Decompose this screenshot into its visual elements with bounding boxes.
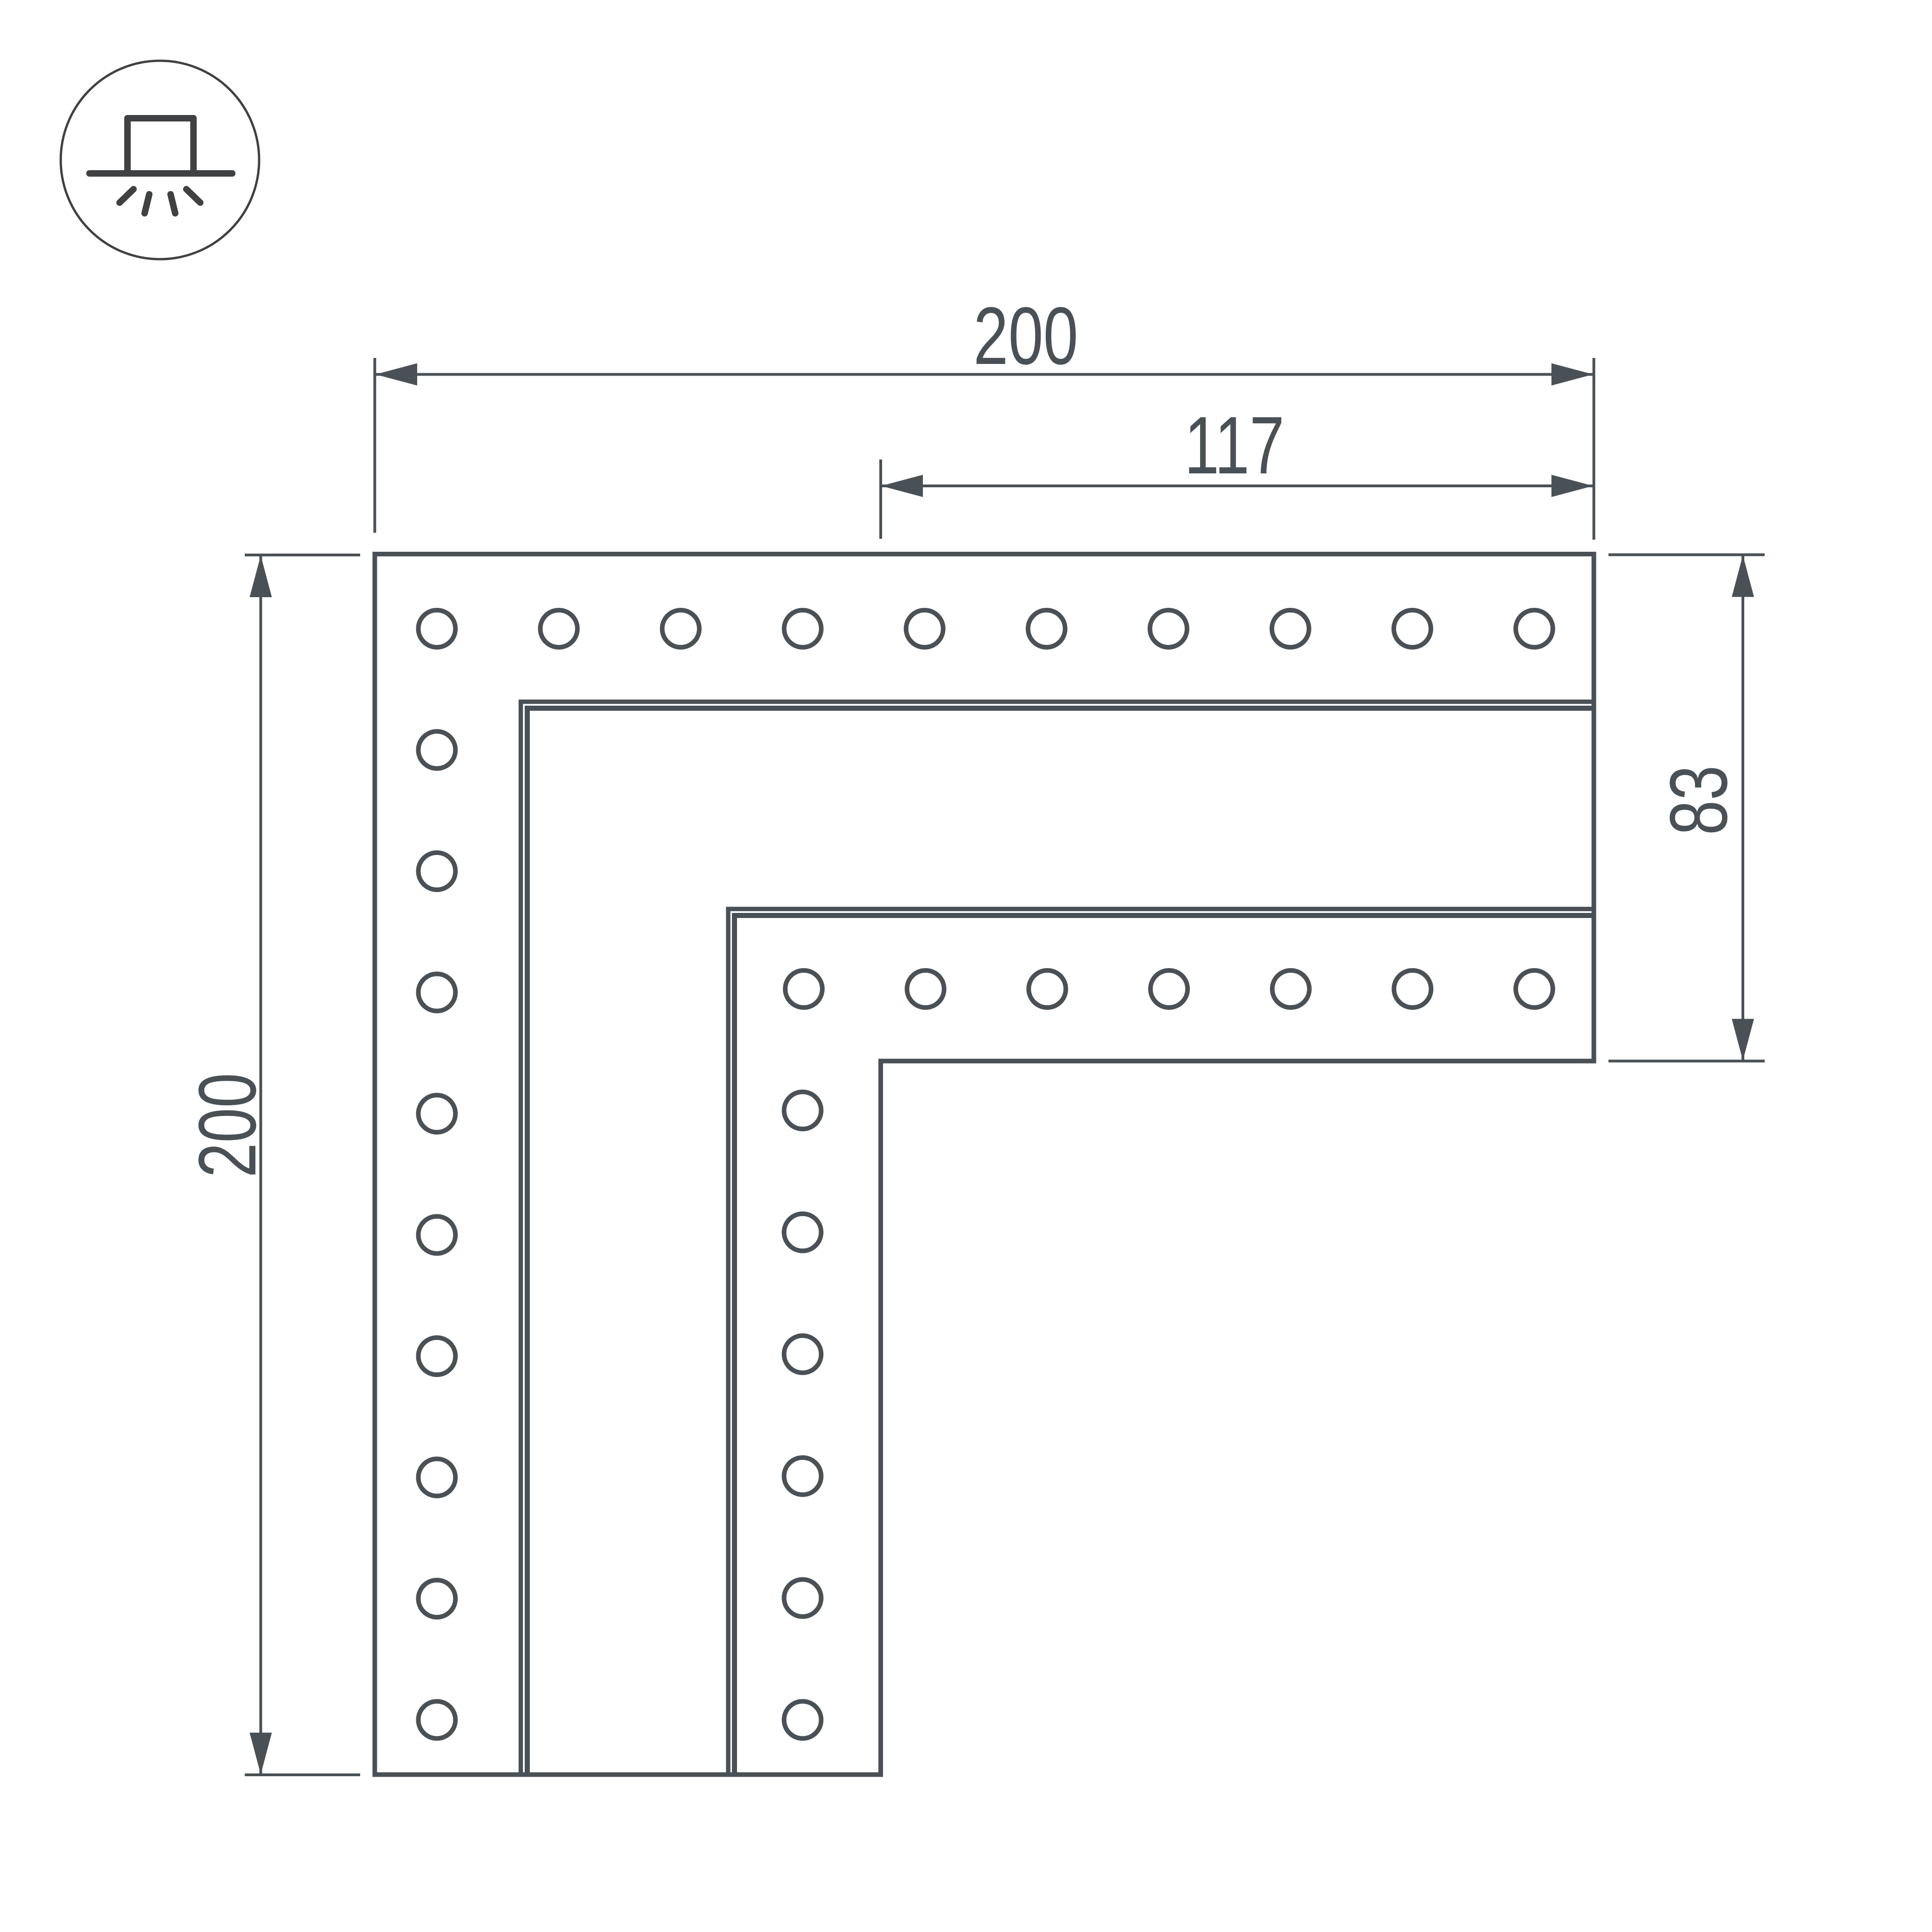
- svg-text:117: 117: [1184, 400, 1284, 491]
- svg-text:83: 83: [1653, 765, 1744, 835]
- svg-text:200: 200: [973, 291, 1078, 382]
- svg-text:200: 200: [182, 1073, 273, 1178]
